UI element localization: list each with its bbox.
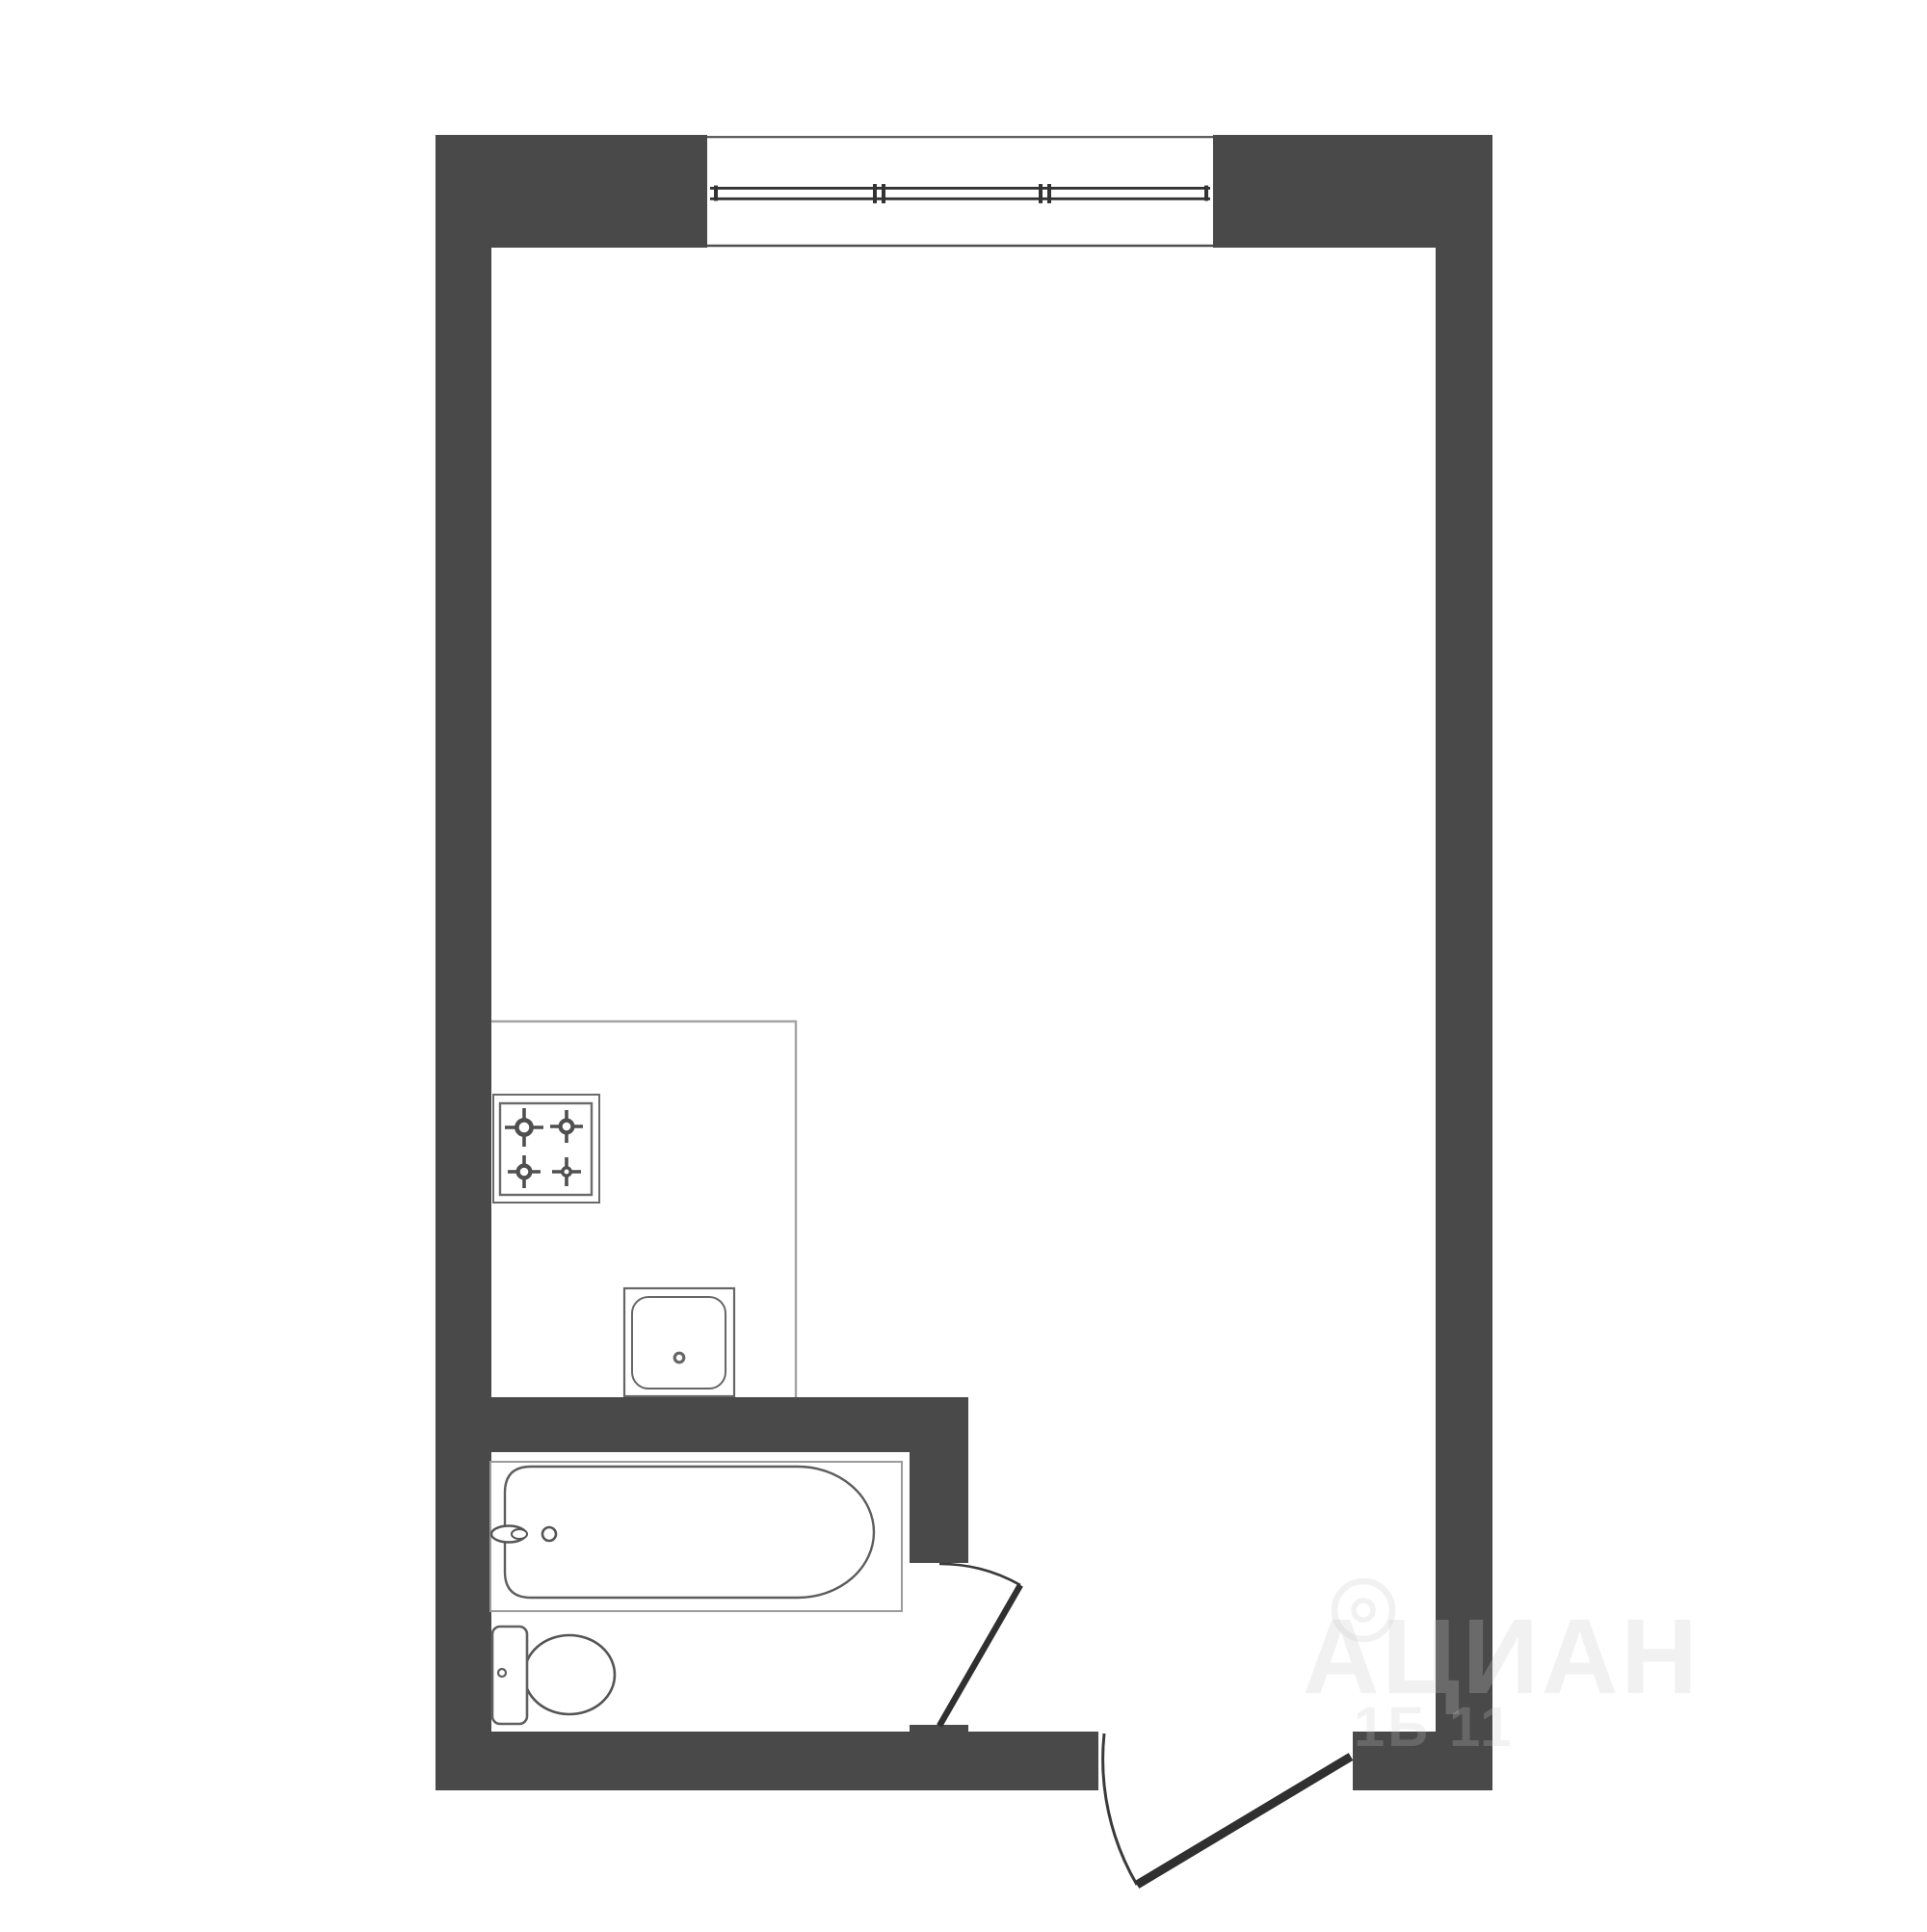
svg-text:1Б 11: 1Б 11 — [1354, 1696, 1514, 1759]
